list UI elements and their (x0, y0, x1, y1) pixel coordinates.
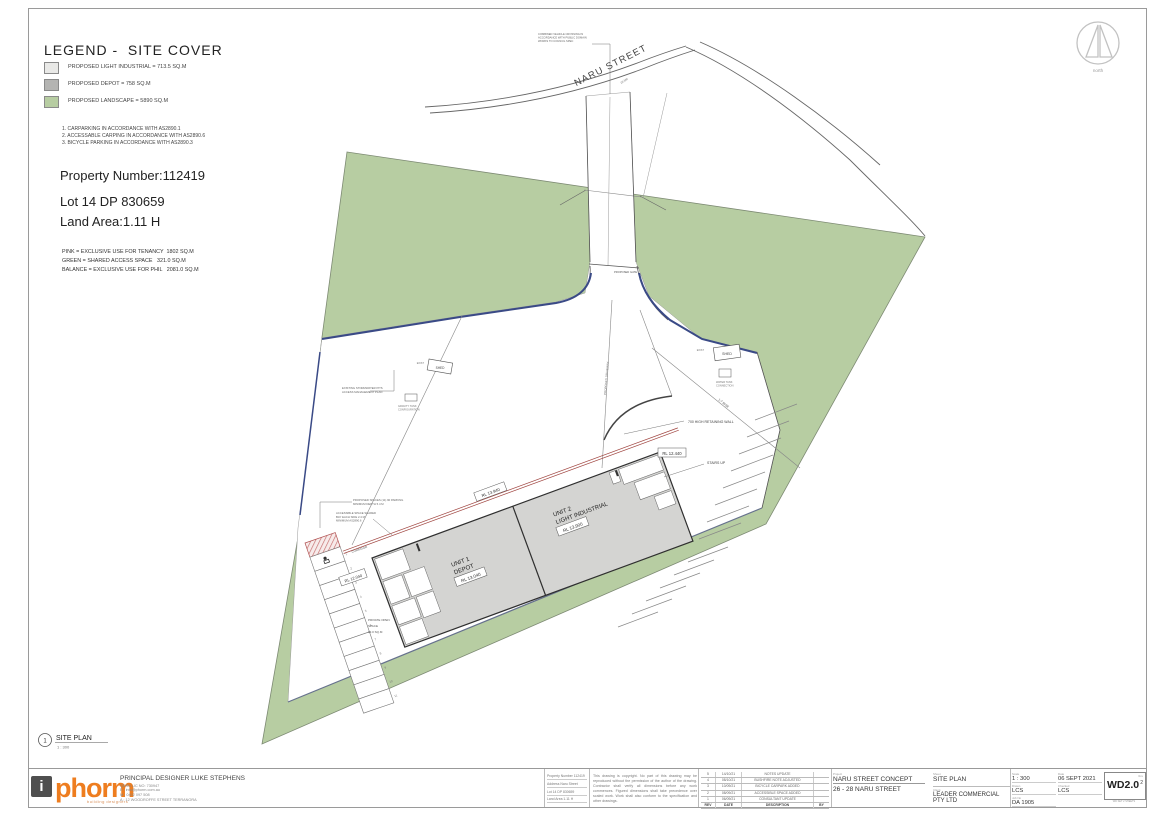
stairs-label: STAIRS UP (707, 461, 726, 465)
phorm-logo-mark: i (31, 776, 52, 797)
designer-block: PRINCIPAL DESIGNER LUKE STEPHENS QBSN LI… (120, 775, 245, 802)
revision-table: 514/10/21 NOTES UPDATE 408/10/21 BUSHFIR… (701, 772, 829, 809)
chainage: 19.5M (619, 77, 629, 85)
info-lot: Lot 14 DP 830659 (547, 790, 587, 796)
tb-separator (589, 769, 590, 807)
property-info-column: Property Number 112419 Address Naru Stre… (547, 774, 587, 805)
project-address: 26 - 28 NARU STREET (833, 786, 925, 793)
shed-a-label: SHED (722, 352, 732, 356)
gate-label: PROPOSED GATE (614, 270, 637, 274)
sheet-number: WD2.0 (1107, 779, 1139, 791)
spaces-note-2: MINIMUM DEPTH 5.4 M (353, 502, 384, 506)
tank-note-b1: GRAVITY TANK (398, 404, 417, 408)
drawn-value: LCS (1012, 788, 1056, 795)
shed-a-tag: EXIST (697, 349, 705, 352)
viewport-label: 1 SITE PLAN 1 : 300 (39, 734, 109, 750)
tank-note-b2: CONFIGURATION (398, 408, 420, 412)
scale-value: 1 : 300 (1012, 776, 1056, 783)
copyright-note: This drawing is copyright. No part of th… (593, 774, 697, 803)
svg-text:11: 11 (394, 693, 399, 698)
sheet-number-box: WD2.0 Rev 2 (1104, 772, 1146, 800)
info-property: Property Number 112419 (547, 774, 587, 780)
shed-b-label: SHED (436, 366, 446, 370)
checked-value: LCS (1058, 788, 1102, 795)
pos-label-1: PRIVATE OPEN (368, 618, 390, 622)
viewport-scale: 1 : 300 (57, 745, 70, 750)
pos-label-3: 33.0 SQ.M (368, 630, 383, 634)
viewport-title: SITE PLAN (56, 735, 92, 742)
street-name: NARU STREET (573, 43, 649, 89)
yard-rl: RL 12.440 (662, 451, 682, 456)
tank-note-a1: WATER TANK (716, 380, 733, 384)
revision-header-row: REVDATE DESCRIPTIONBY (701, 803, 829, 809)
set-note: WD SET 2 SHEETS (1104, 800, 1144, 803)
title-block: i phorm building designers PRINCIPAL DES… (28, 768, 1146, 807)
shed-b-tag: EXIST (417, 362, 425, 365)
drawing-sheet: LEGEND - SITE COVER PROPOSED LIGHT INDUS… (0, 0, 1150, 813)
crossing-note-2: ACCORDANCE WITH PUBLIC DOMAIN (538, 36, 587, 40)
info-address: Address Naru Street (547, 782, 587, 788)
client-name: LEADER COMMERCIAL PTY LTD (933, 792, 1011, 804)
project-name: NARU STREET CONCEPT (833, 776, 925, 784)
designer-title: PRINCIPAL DESIGNER LUKE STEPHENS (120, 775, 245, 782)
tank-note-a2: CONNECTION (716, 384, 734, 388)
tb-separator (831, 769, 832, 807)
accessible-note-3: MINIMUM AS2890.6 (336, 519, 362, 523)
site-plan-drawing: UNIT 1 DEPOT RL 13.040 UNIT 2 LIGHT INDU… (0, 0, 1150, 770)
rev-label: Rev (1139, 775, 1143, 778)
rev-value: 2 (1140, 780, 1143, 786)
crossing-note-1: COMBINED VEHICLE CROSSING IN (538, 32, 583, 36)
stormwater-note-2: ACCESS MANAGEMENT PLAN (342, 390, 382, 394)
job-value: DA 1905 (1012, 800, 1056, 807)
sheet-name: SITE PLAN (933, 776, 1011, 783)
pos-label-2: SPACE (368, 624, 378, 628)
designer-address: A : 12 WOODROFFE STREET TERRANORA (120, 798, 245, 803)
date-value: 06 SEPT 2021 (1058, 776, 1102, 783)
tb-separator (544, 769, 545, 807)
north-arrow: north (1077, 22, 1119, 73)
retaining-wall-label: 700 HIGH RETAINING WALL (688, 420, 734, 424)
crossing-note-3: WORKS TO COUNCIL SPEC (538, 39, 573, 43)
viewport-number: 1 (43, 739, 47, 745)
north-label: north (1093, 68, 1104, 73)
info-area: Land Area 1.11 H (547, 797, 587, 803)
tb-separator (698, 769, 699, 807)
